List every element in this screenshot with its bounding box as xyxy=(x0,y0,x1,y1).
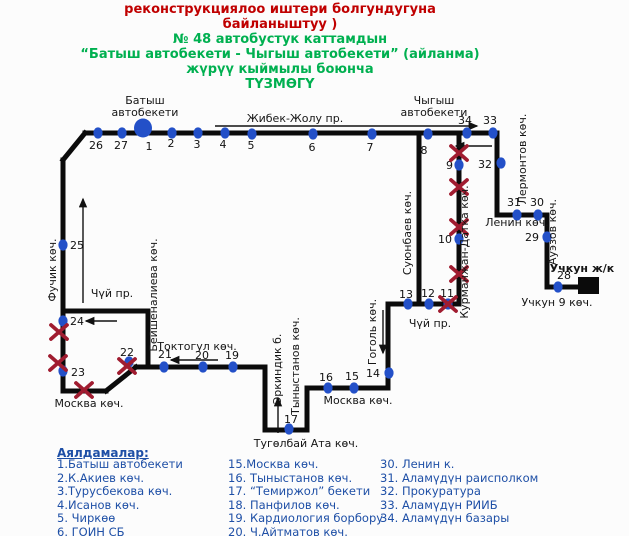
stop-number: 12 xyxy=(421,287,435,300)
stop-number: 29 xyxy=(525,231,539,244)
stop-number: 26 xyxy=(89,139,103,152)
stop-number: 23 xyxy=(71,366,85,379)
stop-number: 24 xyxy=(70,315,84,328)
bus-stop-dot xyxy=(58,239,67,250)
bus-stop-dot xyxy=(323,382,332,393)
street-label: Фучик көч. xyxy=(46,238,59,301)
stop-number: 13 xyxy=(399,288,413,301)
bus-stop-dot xyxy=(349,382,358,393)
legend-item: 15.Москва көч. xyxy=(228,458,383,472)
street-label: Чүй пр. xyxy=(409,317,451,330)
stop-number: 1 xyxy=(146,140,153,153)
bus-stop-dot xyxy=(424,298,433,309)
stop-number: 3 xyxy=(194,138,201,151)
direction-arrows-group xyxy=(83,126,492,433)
street-label: Суюнбаев көч. xyxy=(401,191,414,275)
legend-item: 1.Батыш автобекети xyxy=(57,458,183,472)
street-label: Тыныстанов көч. xyxy=(289,317,302,416)
bus-stop-dot xyxy=(462,127,471,138)
stop-number: 6 xyxy=(309,141,316,154)
legend-item: 32. Прокуратура xyxy=(380,485,538,499)
bus-stop-dot xyxy=(220,127,229,138)
legend-item: 17. “Темиржол” бекети xyxy=(228,485,383,499)
street-label: Чүй пр. xyxy=(91,287,133,300)
stops-legend: Аялдамалар: 1.Батыш автобекети2.К.Акиев … xyxy=(0,444,629,536)
legend-item: 5. Чиркөө xyxy=(57,512,183,526)
legend-item: 4.Исанов көч. xyxy=(57,499,183,513)
legend-item: 18. Панфилов көч. xyxy=(228,499,383,513)
street-label: Эркиндик б. xyxy=(271,334,284,405)
stop-number: 22 xyxy=(120,346,134,359)
stop-number: 8 xyxy=(421,144,428,157)
stop-number: 16 xyxy=(319,371,333,384)
legend-item: 30. Ленин к. xyxy=(380,458,538,472)
street-label: автобекети xyxy=(401,106,468,119)
bus-stop-dot xyxy=(454,159,463,170)
street-labels-group: БатышавтобекетиЧыгышавтобекетиЖибек-Жолу… xyxy=(46,94,615,450)
legend-column-3: 30. Ленин к.31. Аламүдүн раисполком32. П… xyxy=(380,458,538,526)
stop-number: 5 xyxy=(248,139,255,152)
street-label: Москва көч. xyxy=(54,397,123,410)
bus-stop-dot xyxy=(193,127,202,138)
stop-number: 32 xyxy=(478,158,492,171)
street-label: Ленин көч. xyxy=(485,216,548,229)
legend-item: 3.Турусбекова көч. xyxy=(57,485,183,499)
bus-stop-dot xyxy=(247,128,256,139)
legend-item: 19. Кардиология борбору xyxy=(228,512,383,526)
street-label: Гоголь көч. xyxy=(366,299,379,365)
stop-number: 30 xyxy=(530,196,544,209)
legend-column-1: 1.Батыш автобекети2.К.Акиев көч.3.Турусб… xyxy=(57,458,183,536)
bus-stop-dot xyxy=(117,127,126,138)
route-segment xyxy=(63,133,85,160)
legend-item: 34. Аламүдүн базары xyxy=(380,512,538,526)
stop-number: 33 xyxy=(483,114,497,127)
street-label: Токтогул көч. xyxy=(156,340,236,353)
bus-stop-dot xyxy=(496,157,505,168)
street-label: Бейшеналиева көч. xyxy=(147,238,160,351)
bus-stop-dot xyxy=(384,367,393,378)
stop-number: 27 xyxy=(114,139,128,152)
bus-stop-dot xyxy=(159,361,168,372)
bus-stop-dot xyxy=(198,361,207,372)
legend-item: 6. ГОИН СБ xyxy=(57,526,183,536)
stop-number: 2 xyxy=(168,137,175,150)
legend-column-2: 15.Москва көч.16. Тыныстанов көч.17. “Те… xyxy=(228,458,383,536)
legend-item: 20. Ч.Айтматов көч. xyxy=(228,526,383,536)
street-label: Жибек-Жолу пр. xyxy=(247,112,343,125)
stop-number: 7 xyxy=(367,141,374,154)
bus-stop-dot xyxy=(488,127,497,138)
terminal-square xyxy=(578,277,599,294)
street-label: Учкун 9 көч. xyxy=(522,296,593,309)
bus-stop-dot xyxy=(308,128,317,139)
street-label: Учкун ж/к xyxy=(550,262,615,275)
stop-number: 4 xyxy=(220,138,227,151)
bus-stop-dot xyxy=(93,127,102,138)
stop-number: 14 xyxy=(366,367,380,380)
legend-item: 16. Тыныстанов көч. xyxy=(228,472,383,486)
street-label: Ауэзов көч. xyxy=(546,199,559,265)
stop-number: 15 xyxy=(345,370,359,383)
bus-stop-dot xyxy=(134,119,152,138)
legend-item: 33. Аламүдүн РИИБ xyxy=(380,499,538,513)
route-scheme-page: реконструкциялоо иштери болгундугуна бай… xyxy=(0,0,629,536)
street-label: Курманжан-Датка көч. xyxy=(458,185,471,318)
bus-stop-dot xyxy=(367,128,376,139)
bus-stop-dot xyxy=(228,361,237,372)
stop-number: 25 xyxy=(70,239,84,252)
street-label: Лермонтов көч. xyxy=(516,114,529,205)
bus-stop-dot xyxy=(423,128,432,139)
street-label: автобекети xyxy=(112,106,179,119)
bus-stop-dot xyxy=(553,281,562,292)
legend-item: 2.К.Акиев көч. xyxy=(57,472,183,486)
legend-item: 31. Аламүдүн раисполком xyxy=(380,472,538,486)
street-label: Москва көч. xyxy=(323,394,392,407)
